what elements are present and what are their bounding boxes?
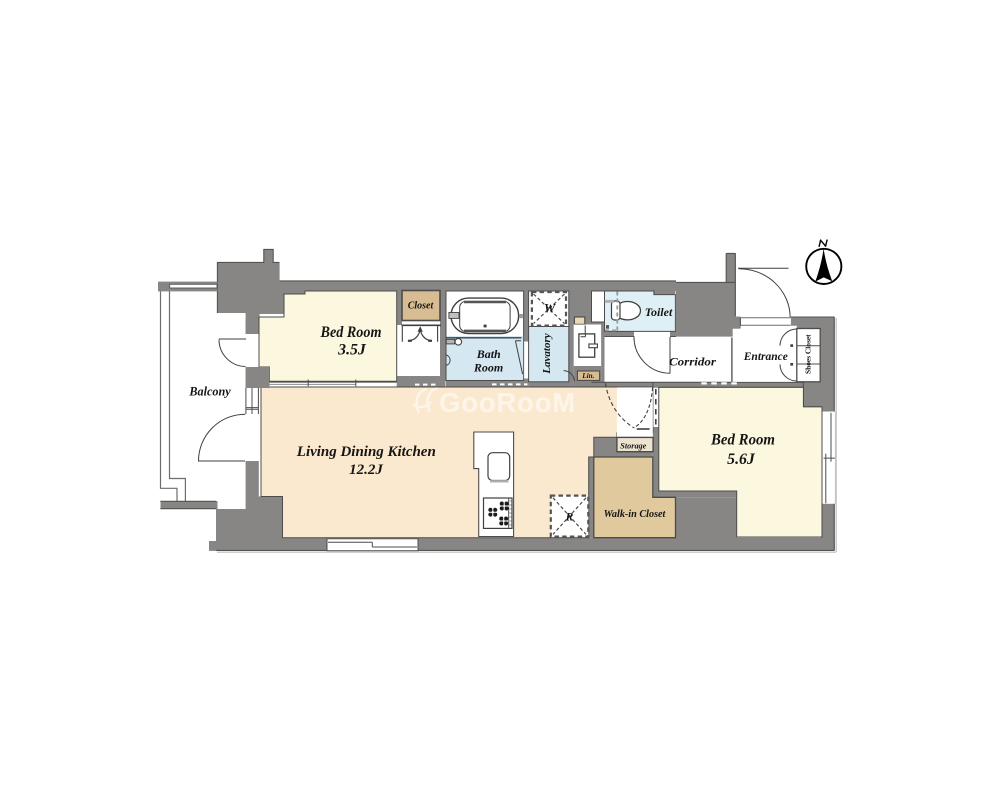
svg-text:Living Dining Kitchen: Living Dining Kitchen	[296, 444, 436, 460]
svg-text:Room: Room	[473, 360, 503, 374]
svg-text:W: W	[544, 302, 556, 316]
svg-text:5.6J: 5.6J	[727, 451, 756, 468]
svg-text:Lin.: Lin.	[581, 372, 594, 380]
svg-text:Toilet: Toilet	[645, 305, 673, 319]
svg-text:Lavatory: Lavatory	[541, 333, 553, 374]
svg-text:Entrance: Entrance	[743, 351, 788, 363]
svg-text:R: R	[565, 512, 574, 524]
svg-text:Walk-in Closet: Walk-in Closet	[604, 509, 667, 520]
svg-text:Bed Room: Bed Room	[320, 323, 382, 341]
svg-text:Closet: Closet	[408, 301, 435, 312]
svg-text:Bath: Bath	[476, 347, 501, 361]
svg-text:12.2J: 12.2J	[349, 462, 383, 478]
svg-text:GooRooM: GooRooM	[439, 387, 576, 418]
svg-text:3.5J: 3.5J	[337, 342, 367, 359]
svg-text:Balcony: Balcony	[188, 385, 231, 399]
svg-text:Bed Room: Bed Room	[710, 431, 775, 449]
svg-text:Storage: Storage	[620, 441, 646, 450]
svg-text:Shoes Closet: Shoes Closet	[803, 334, 812, 374]
svg-text:Corridor: Corridor	[669, 357, 717, 369]
